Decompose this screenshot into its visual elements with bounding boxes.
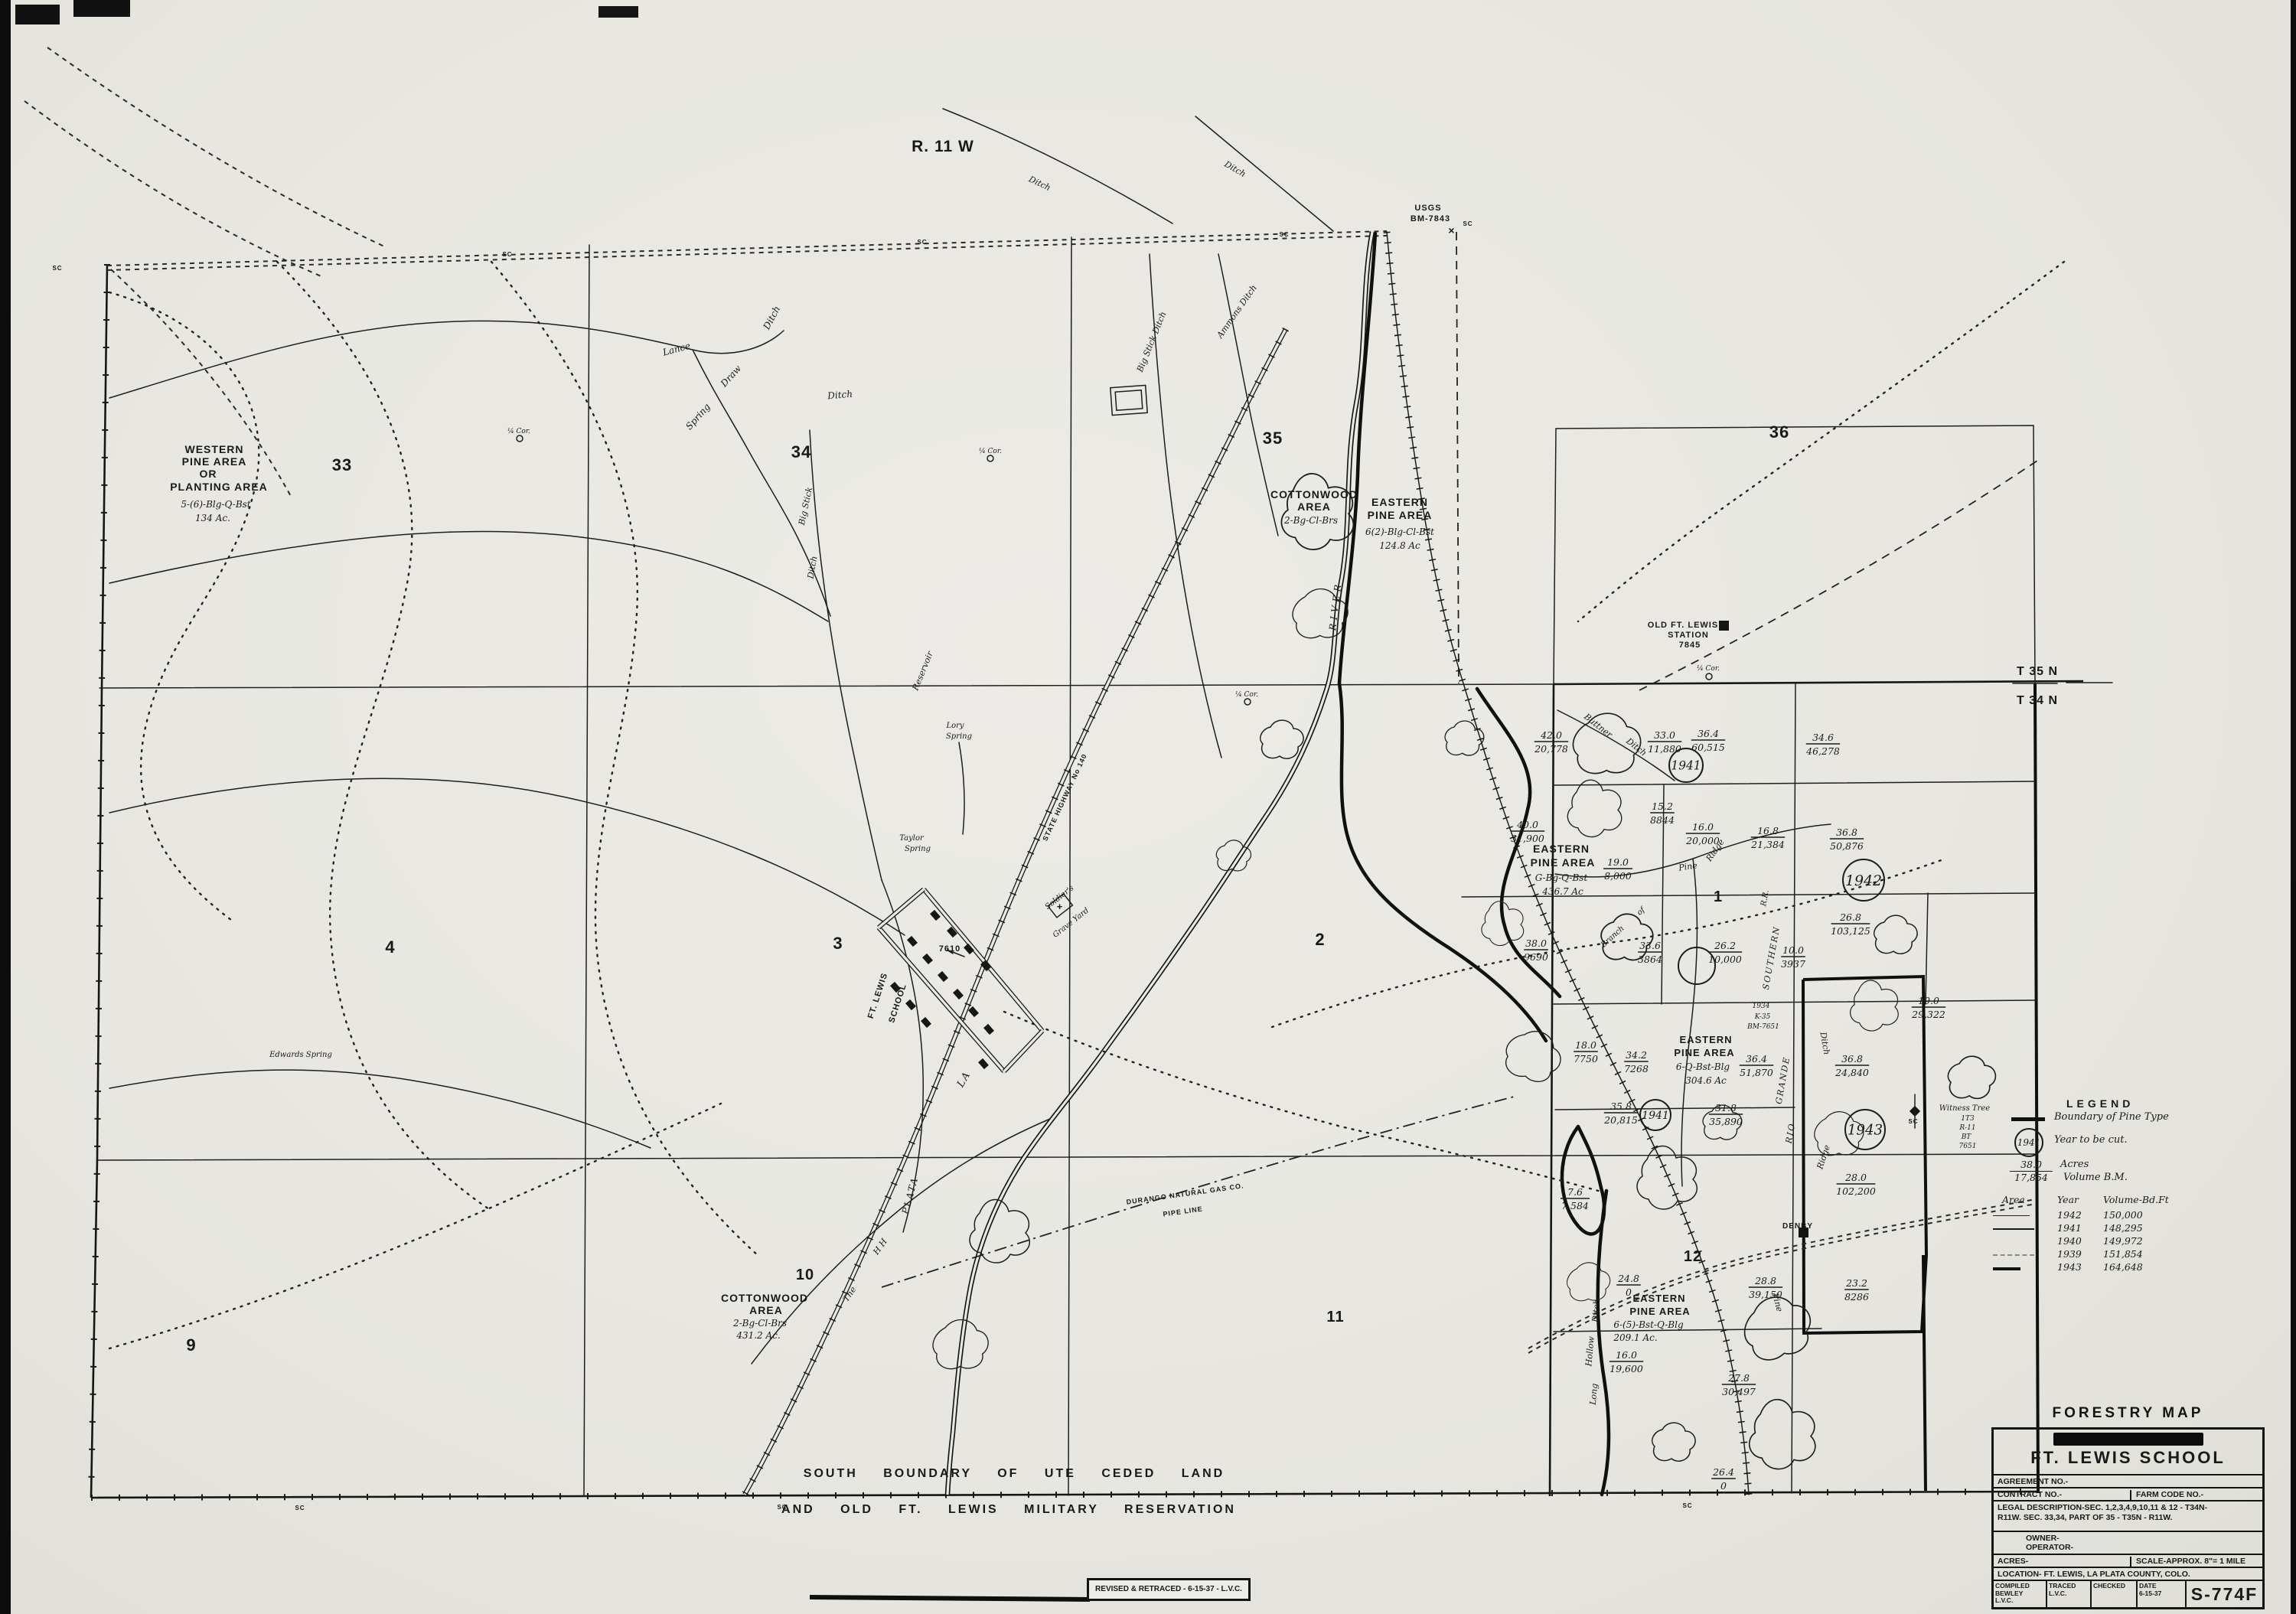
railroad-label: SOUTHERN <box>1761 925 1782 991</box>
reservoir-symbol <box>1110 385 1147 415</box>
acres-volume-fraction: 26.210,000 <box>1708 940 1742 965</box>
svg-text:8,000: 8,000 <box>1604 870 1632 882</box>
area-type: 6-(5)-Bst-Q-Blg <box>1613 1319 1684 1330</box>
legend-volume-label: Volume B.M. <box>2063 1172 2128 1183</box>
svg-text:7268: 7268 <box>1624 1063 1649 1074</box>
date-cell: DATE 6-15-37 <box>2138 1581 2187 1607</box>
ditch-label: Ditch <box>1590 1299 1603 1323</box>
railroad-label: GRANDE <box>1774 1055 1792 1105</box>
spring-label: Taylor <box>899 834 925 843</box>
svg-text:21,384: 21,384 <box>1750 839 1785 850</box>
acres-volume-fraction: 42.020,778 <box>1534 729 1568 755</box>
area-type: 2-Bg-Cl-Brs <box>1283 515 1338 526</box>
ridge-label: Ridge <box>1815 1143 1832 1171</box>
legend-row-volume: 151,854 <box>2103 1248 2143 1260</box>
legend-line-sample <box>1993 1215 2030 1216</box>
svg-text:36.4: 36.4 <box>1746 1053 1767 1065</box>
legend-row-year: 1941 <box>2057 1222 2082 1234</box>
map-canvas: + R. 11 WT 35 NT 34 N3334353643219101112… <box>0 0 2296 1614</box>
legend-row-year: 1940 <box>2057 1235 2082 1247</box>
witness-tree-label: R-11 <box>1958 1124 1975 1132</box>
legend-table-row: 1940149,972 <box>1987 1235 2195 1248</box>
quarter-corner-circles <box>517 435 1712 705</box>
station-label: 7845 <box>1679 641 1701 650</box>
svg-text:42.0: 42.0 <box>1540 729 1562 741</box>
range-label: R. 11 W <box>912 138 974 155</box>
title-block: FORESTRY MAP FT. LEWIS SCHOOL AGREEMENT … <box>1991 1405 2265 1609</box>
acres-scale-row: ACRES- SCALE-APPROX. 8"= 1 MILE <box>1994 1554 2262 1567</box>
section-number: 34 <box>791 442 811 461</box>
svg-text:31.8: 31.8 <box>1715 1102 1737 1113</box>
svg-text:9690: 9690 <box>1524 951 1548 963</box>
legend-fraction-sample: 38.0 17,854 <box>2010 1159 2053 1183</box>
map-type-heading: FORESTRY MAP <box>1991 1405 2265 1422</box>
corner-label: ¼ Cor. <box>1697 664 1720 673</box>
svg-text:26.2: 26.2 <box>1714 940 1736 951</box>
acres-volume-fraction: 36.451,870 <box>1740 1053 1773 1078</box>
scale-label: SCALE-APPROX. 8"= 1 MILE <box>2130 1557 2245 1567</box>
acres-volume-fraction: 38.09690 <box>1524 937 1548 963</box>
section-number: 35 <box>1263 429 1283 448</box>
svg-text:7.6: 7.6 <box>1567 1186 1583 1198</box>
ditch-label: H H <box>871 1237 889 1257</box>
section-number: 1 <box>1714 889 1723 905</box>
railroad-label: RIO <box>1784 1122 1798 1145</box>
svg-text:28.0: 28.0 <box>1844 1172 1867 1183</box>
svg-text:27.8: 27.8 <box>1727 1372 1750 1384</box>
svg-text:18.0: 18.0 <box>1575 1039 1596 1051</box>
area-name: WESTERN <box>185 443 244 455</box>
legend-row-volume: 164,648 <box>2103 1261 2143 1273</box>
creek-label: of <box>1636 905 1648 917</box>
svg-text:35,890: 35,890 <box>1709 1116 1743 1127</box>
area-type: 5-(6)-Blg-Q-Bst <box>181 499 250 510</box>
svg-text:20,778: 20,778 <box>1534 743 1568 755</box>
area-type: G-Bg-Q-Bst <box>1535 872 1588 883</box>
acres-volume-fraction: 36.824,840 <box>1835 1053 1869 1078</box>
svg-text:51,870: 51,870 <box>1740 1067 1773 1078</box>
acres-volume-fraction: 26.40 <box>1711 1466 1736 1492</box>
witness-tree-label: Witness Tree <box>1939 1104 1990 1113</box>
svg-text:8844: 8844 <box>1650 814 1675 826</box>
elevation-label: 7610 <box>939 944 960 954</box>
area-acres: 431.2 Ac. <box>735 1330 780 1341</box>
svg-text:20,815: 20,815 <box>1603 1114 1638 1126</box>
school-label: SCHOOL <box>887 983 908 1024</box>
acres-volume-fraction: 15.28844 <box>1650 800 1675 826</box>
legend-line-sample <box>1993 1228 2034 1230</box>
acres-volume-fraction: 40.031,900 <box>1511 819 1544 844</box>
area-name: EASTERN <box>1679 1034 1732 1045</box>
township-label: T 34 N <box>2017 694 2058 707</box>
svg-text:29,322: 29,322 <box>1911 1009 1945 1020</box>
legal-line-1: LEGAL DESCRIPTION-SEC. 1,2,3,4,9,10,11 &… <box>1998 1503 2262 1513</box>
school-name: FT. LEWIS SCHOOL <box>1994 1448 2262 1468</box>
svg-text:16.0: 16.0 <box>1692 821 1714 833</box>
witness-tree-label: 1T3 <box>1961 1115 1975 1123</box>
svg-text:20,000: 20,000 <box>1685 835 1720 846</box>
svg-text:16.8: 16.8 <box>1757 825 1779 836</box>
legend-table-row: 1942150,000 <box>1987 1209 2195 1222</box>
acres-volume-fraction: 16.019,600 <box>1609 1349 1643 1374</box>
section-number: 9 <box>186 1335 196 1355</box>
svg-text:35.8: 35.8 <box>1610 1100 1632 1112</box>
svg-text:24,840: 24,840 <box>1835 1067 1869 1078</box>
boundary-note: SOUTH BOUNDARY OF UTE CEDED LAND <box>804 1467 1225 1480</box>
river-label: LA <box>954 1069 974 1090</box>
svg-text:38.0: 38.0 <box>1525 937 1547 949</box>
section-number: 3 <box>833 934 843 953</box>
legal-description-row: LEGAL DESCRIPTION-SEC. 1,2,3,4,9,10,11 &… <box>1994 1500 2262 1531</box>
area-name: COTTONWOOD <box>1270 488 1358 501</box>
svg-text:103,125: 103,125 <box>1831 925 1870 937</box>
acres-volume-fraction: 28.839,150 <box>1749 1275 1782 1300</box>
acres-volume-fraction: 16.821,384 <box>1750 825 1785 850</box>
legend-row-year: 1942 <box>2057 1209 2082 1221</box>
svg-text:28.8: 28.8 <box>1754 1275 1776 1286</box>
farm-code-label: FARM CODE NO.- <box>2130 1490 2203 1500</box>
pine-boundary-sample-line <box>2011 1117 2045 1121</box>
acres-volume-fraction: 34.646,278 <box>1805 732 1840 757</box>
ditch-label: Hollow <box>1583 1335 1596 1368</box>
benchmark-label: K-35 <box>1754 1013 1771 1021</box>
checked-label: CHECKED <box>2093 1583 2135 1590</box>
svg-text:33.6: 33.6 <box>1639 940 1661 951</box>
corner-label: ¼ Cor. <box>979 447 1002 455</box>
acres-volume-fraction: 18.07750 <box>1574 1039 1598 1065</box>
acres-volume-fraction: 27.830,497 <box>1722 1372 1756 1397</box>
legend-table-row: 1939151,854 <box>1987 1248 2195 1261</box>
svg-text:7750: 7750 <box>1574 1053 1598 1065</box>
township-label: T 35 N <box>2017 665 2058 678</box>
corner-label: SC <box>1682 1502 1692 1509</box>
area-acres: 304.6 Ac <box>1685 1075 1727 1086</box>
area-name: PINE AREA <box>1629 1306 1690 1317</box>
acres-volume-fraction: 26.8103,125 <box>1831 911 1870 937</box>
corner-label: ¼ Cor. <box>1235 690 1258 699</box>
legend-row-volume: 149,972 <box>2103 1235 2143 1247</box>
svg-text:15.2: 15.2 <box>1652 800 1673 812</box>
svg-text:0: 0 <box>1626 1286 1632 1298</box>
area-name: EASTERN <box>1632 1293 1685 1304</box>
legend-table-row: 1941148,295 <box>1987 1222 2195 1235</box>
ditch-label: Big Stick Ditch <box>1135 310 1169 374</box>
section-number: 4 <box>385 937 395 957</box>
ditch-label: Ditch <box>1222 158 1247 179</box>
area-name: PINE AREA <box>182 455 247 468</box>
station-label: STATION <box>1668 631 1709 640</box>
area-name: OR <box>200 468 217 480</box>
area-acres: 436.7 Ac <box>1541 886 1583 897</box>
svg-text:7,584: 7,584 <box>1561 1200 1589 1211</box>
corner-label: SC <box>1279 231 1289 238</box>
area-acres: 209.1 Ac. <box>1613 1332 1657 1343</box>
pipeline-label: DURANGO NATURAL GAS CO. <box>1126 1182 1244 1205</box>
area-name: AREA <box>749 1304 783 1316</box>
river-label: RIVER <box>1327 580 1344 631</box>
corner-label: SC <box>295 1505 305 1511</box>
road-label: STATE HIGHWAY No 140 <box>1041 752 1088 842</box>
legal-line-2: R11W. SEC. 33,34, PART OF 35 - T35N - R1… <box>1998 1513 2262 1523</box>
map-labels-layer: R. 11 WT 35 NT 34 N3334353643219101112WE… <box>52 138 2058 1516</box>
svg-text:19,600: 19,600 <box>1609 1363 1643 1374</box>
corner-label: SC <box>1908 1118 1918 1125</box>
svg-text:3864: 3864 <box>1638 954 1662 965</box>
legend-table-rows: 1942150,0001941148,2951940149,9721939151… <box>1987 1209 2195 1274</box>
acres-volume-fraction: 34.27268 <box>1624 1049 1649 1074</box>
acres-volume-fraction: 10.03937 <box>1781 944 1805 970</box>
spring-label: Spring <box>946 732 972 741</box>
benchmark-label: USGS <box>1414 204 1441 213</box>
svg-text:34.6: 34.6 <box>1812 732 1834 743</box>
svg-text:39,150: 39,150 <box>1749 1289 1782 1300</box>
credits-row: COMPILED BEWLEY L.V.C. TRACED L.V.C. CHE… <box>1994 1580 2262 1607</box>
area-name: AREA <box>1297 501 1331 513</box>
section-number: 11 <box>1326 1309 1344 1325</box>
svg-text:10.0: 10.0 <box>1918 995 1939 1006</box>
acres-volume-fraction: 36.460,515 <box>1691 728 1725 753</box>
compiled-org: L.V.C. <box>1995 1597 2044 1605</box>
acres-volume-fraction: 28.0102,200 <box>1836 1172 1876 1197</box>
area-type: 6(2)-Blg-Cl-Bst <box>1365 527 1434 537</box>
acres-volume-fraction: 10.029,322 <box>1911 995 1945 1020</box>
year-to-cut-circle: 1943 <box>1845 1110 1885 1149</box>
legend-table-row: 1943164,648 <box>1987 1261 2195 1274</box>
corner-label: SC <box>1463 220 1473 227</box>
acres-volume-fraction: 35.820,815 <box>1603 1100 1638 1126</box>
svg-text:10.0: 10.0 <box>1782 944 1804 956</box>
station-label: OLD FT. LEWIS <box>1648 621 1718 630</box>
legend-year-label: Year to be cut. <box>2054 1134 2128 1146</box>
corner-label: SC <box>52 265 62 272</box>
compiled-cell: COMPILED BEWLEY L.V.C. <box>1994 1581 2047 1607</box>
area-name: PINE AREA <box>1674 1047 1734 1058</box>
legend-line-sample <box>1993 1267 2020 1270</box>
owner-label: OWNER- <box>2026 1534 2262 1543</box>
section-number: 33 <box>332 455 352 474</box>
legend-line-sample <box>1993 1254 2034 1256</box>
svg-text:11,880: 11,880 <box>1648 743 1681 755</box>
title-block-box: FT. LEWIS SCHOOL AGREEMENT NO.- CONTRACT… <box>1991 1427 2265 1609</box>
location-row: LOCATION- FT. LEWIS, LA PLATA COUNTY, CO… <box>1994 1567 2262 1580</box>
station-square <box>1719 621 1729 631</box>
traced-cell: TRACED L.V.C. <box>2047 1581 2092 1607</box>
legend-fraction-volume: 17,854 <box>2010 1172 2053 1183</box>
section-number: 12 <box>1684 1248 1702 1265</box>
agreement-row: AGREEMENT NO.- <box>1994 1474 2262 1487</box>
ditch-label: Big Stick <box>797 486 814 527</box>
svg-text:36.8: 36.8 <box>1841 1053 1863 1065</box>
acres-volume-fraction: 33.63864 <box>1638 940 1662 965</box>
section-number: 36 <box>1769 422 1789 442</box>
svg-text:30,497: 30,497 <box>1722 1386 1756 1397</box>
corner-label: SC <box>502 251 512 258</box>
legend-fraction-acres: 38.0 <box>2010 1159 2053 1172</box>
area-type: 2-Bg-Cl-Brs <box>732 1318 787 1329</box>
year-to-cut-circle: 1941 <box>1669 748 1703 782</box>
acres-volume-fraction: 16.020,000 <box>1685 821 1720 846</box>
legend-row-year: 1939 <box>2057 1248 2082 1260</box>
pipeline-label: PIPE LINE <box>1163 1205 1203 1218</box>
sheet-number: S-774F <box>2187 1581 2262 1607</box>
svg-text:19.0: 19.0 <box>1607 856 1629 868</box>
area-name: EASTERN <box>1371 496 1428 508</box>
acres-volume-fraction: 23.28286 <box>1844 1277 1869 1303</box>
map-linework-layer <box>24 47 2112 1498</box>
svg-text:102,200: 102,200 <box>1836 1185 1876 1197</box>
svg-text:1943: 1943 <box>1848 1123 1883 1139</box>
creek-label: Pine <box>1677 860 1698 872</box>
svg-text:0: 0 <box>1720 1480 1727 1492</box>
school-label: FT. LEWIS <box>866 972 890 1020</box>
checked-cell: CHECKED <box>2092 1581 2138 1607</box>
area-type: 6-Q-Bst-Blg <box>1676 1061 1730 1072</box>
legend-col-volume: Volume-Bd.Ft <box>2103 1194 2169 1205</box>
svg-text:8286: 8286 <box>1844 1291 1869 1303</box>
benchmark-label: 1934 <box>1753 1003 1770 1010</box>
section-number: 2 <box>1315 930 1325 949</box>
legend-col-area: Area <box>2002 1194 2025 1205</box>
legend: LEGEND Boundary of Pine Type 1941 Year t… <box>1987 1097 2195 1283</box>
svg-text:34.2: 34.2 <box>1626 1049 1647 1061</box>
acres-label: ACRES- <box>1998 1557 2028 1566</box>
acres-volume-fraction: 7.67,584 <box>1561 1186 1590 1211</box>
legend-acres-label: Acres <box>2060 1159 2089 1170</box>
area-name: PINE AREA <box>1368 509 1433 521</box>
railroad-label: R.R. <box>1760 889 1771 908</box>
acres-volume-fraction: 31.835,890 <box>1709 1102 1743 1127</box>
acres-volume-fraction: 19.08,000 <box>1603 856 1632 882</box>
area-acres: 134 Ac. <box>195 513 230 523</box>
ditch-label: Ditch <box>761 304 782 331</box>
corner-label: SC <box>917 239 927 246</box>
redacted-title-bar <box>2053 1433 2203 1446</box>
legend-col-year: Year <box>2057 1194 2079 1205</box>
svg-text:16.0: 16.0 <box>1616 1349 1637 1361</box>
svg-text:40.0: 40.0 <box>1516 819 1538 830</box>
ditch-label: Ammons Ditch <box>1215 283 1259 341</box>
legend-row-volume: 148,295 <box>2103 1222 2143 1234</box>
ditch-label: Spring <box>683 401 713 432</box>
svg-text:1941: 1941 <box>1642 1110 1669 1122</box>
svg-text:23.2: 23.2 <box>1845 1277 1867 1289</box>
ditch-label: Ditch <box>827 389 853 402</box>
svg-text:36.8: 36.8 <box>1836 827 1857 838</box>
spring-label: Edwards Spring <box>269 1051 332 1059</box>
operator-label: OPERATOR- <box>2026 1543 2262 1552</box>
witness-tree-label: BT <box>1961 1133 1972 1141</box>
boundary-note: AND OLD FT. LEWIS MILITARY RESERVATION <box>781 1503 1236 1516</box>
year-to-cut-circle: 1941 <box>1640 1100 1671 1130</box>
witness-tree-label: 7651 <box>1959 1143 1977 1150</box>
svg-text:33.0: 33.0 <box>1654 729 1675 741</box>
svg-text:26.4: 26.4 <box>1712 1466 1734 1478</box>
area-name: PLANTING AREA <box>170 481 268 493</box>
area-acres: 124.8 Ac <box>1379 540 1420 551</box>
revision-note: REVISED & RETRACED - 6-15-37 - L.V.C. <box>1087 1578 1251 1601</box>
svg-text:26.8: 26.8 <box>1839 911 1861 923</box>
ditch-label: Ditch <box>1026 174 1052 193</box>
forestry-map-sheet: + R. 11 WT 35 NT 34 N3334353643219101112… <box>0 0 2296 1614</box>
svg-text:1942: 1942 <box>1845 872 1882 889</box>
legend-row-volume: 150,000 <box>2103 1209 2143 1221</box>
benchmark-label: BM-7843 <box>1411 214 1450 223</box>
svg-text:31,900: 31,900 <box>1511 833 1544 844</box>
contract-label: CONTRACT NO.- <box>1998 1490 2062 1499</box>
svg-text:1941: 1941 <box>1671 759 1701 773</box>
legend-title: LEGEND <box>2066 1097 2134 1110</box>
acres-volume-fraction: 36.850,876 <box>1830 827 1864 852</box>
legend-row-year: 1943 <box>2057 1261 2082 1273</box>
benchmark-x: × <box>1448 224 1455 236</box>
spring-label: Lory <box>945 722 964 730</box>
date-value: 6-15-37 <box>2139 1590 2183 1598</box>
svg-text:24.8: 24.8 <box>1617 1273 1639 1284</box>
ditch-label: Long <box>1588 1383 1600 1406</box>
ditch-label: Draw <box>718 363 743 390</box>
area-name: EASTERN <box>1533 843 1590 855</box>
legend-year-circle-value: 1941 <box>2017 1137 2041 1148</box>
svg-text:3937: 3937 <box>1781 958 1805 970</box>
svg-text:36.4: 36.4 <box>1698 728 1719 739</box>
title-row: FT. LEWIS SCHOOL <box>1994 1433 2262 1474</box>
area-name: COTTONWOOD <box>721 1292 808 1304</box>
benchmark-label: BM-7651 <box>1746 1023 1779 1031</box>
area-name: PINE AREA <box>1531 856 1596 869</box>
contract-row: CONTRACT NO.- FARM CODE NO.- <box>1994 1487 2262 1500</box>
ditch-label: Ditch <box>1818 1030 1831 1055</box>
legend-boundary-label: Boundary of Pine Type <box>2054 1111 2169 1123</box>
svg-text:46,278: 46,278 <box>1805 745 1840 757</box>
station-label: DENBY <box>1782 1222 1813 1231</box>
owner-operator-row: OWNER- OPERATOR- <box>1994 1531 2262 1554</box>
svg-text:50,876: 50,876 <box>1830 840 1864 852</box>
traced-by: L.V.C. <box>2049 1590 2089 1598</box>
spring-label: Spring <box>905 845 931 853</box>
legend-year-circle: 1941 <box>2014 1128 2043 1157</box>
section-number: 10 <box>796 1267 814 1283</box>
corner-label: ¼ Cor. <box>507 427 530 435</box>
